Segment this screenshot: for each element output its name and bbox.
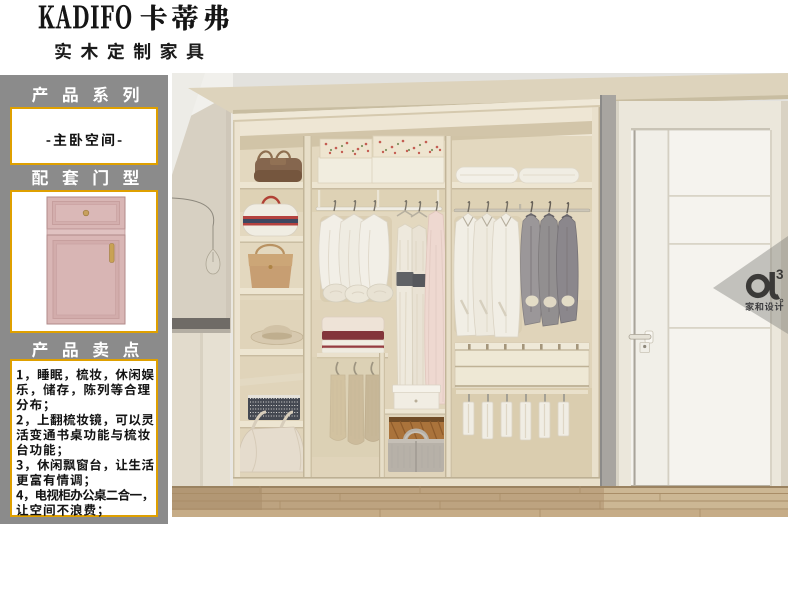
- svg-text:3: 3: [776, 267, 784, 282]
